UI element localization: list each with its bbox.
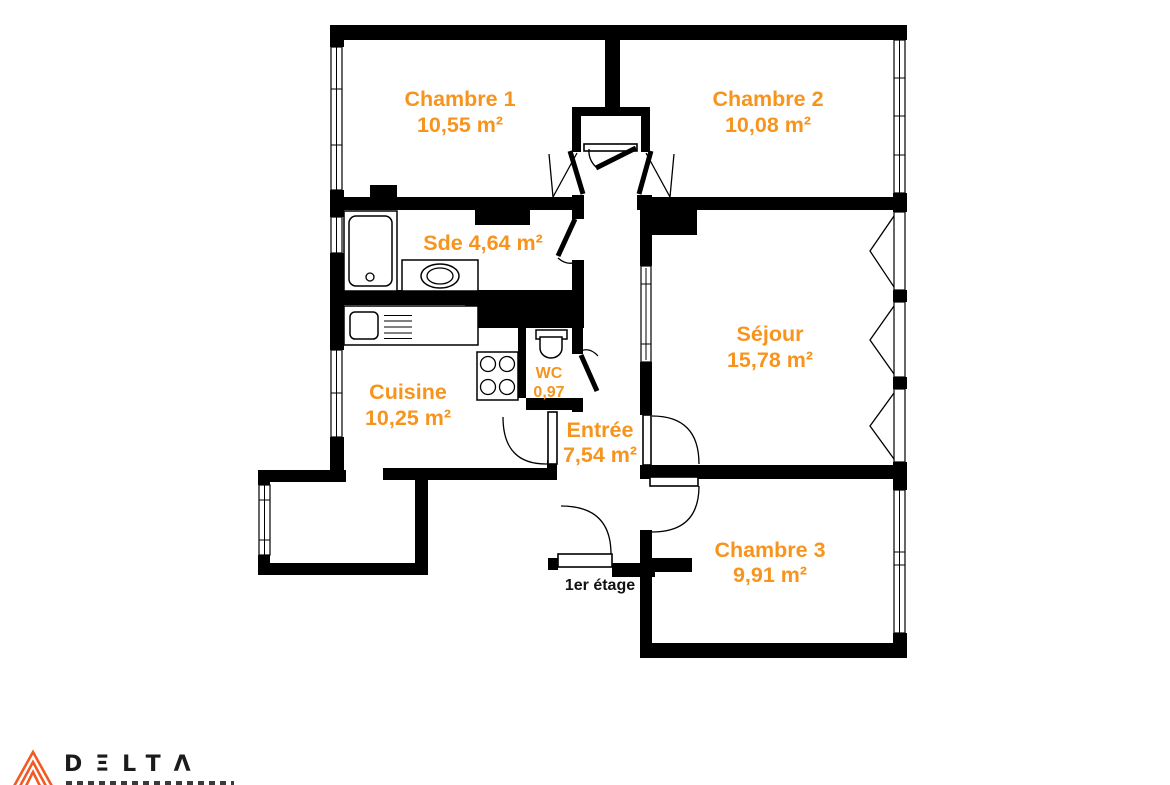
label-chambre1-area: 10,55 m² xyxy=(417,113,503,137)
floor-plan-drawing: Chambre 1 10,55 m² Chambre 2 10,08 m² Sd… xyxy=(0,0,1170,785)
label-cuisine-name: Cuisine xyxy=(369,380,447,404)
window-chambre2-right xyxy=(894,40,905,193)
label-chambre2-name: Chambre 2 xyxy=(712,87,823,111)
window-chambre1-left xyxy=(331,47,342,190)
window-cuisine-left xyxy=(331,350,342,437)
window-sde-left xyxy=(331,217,342,253)
label-cuisine-area: 10,25 m² xyxy=(365,406,451,430)
interior-window-entree-sejour xyxy=(641,266,651,362)
label-sde: Sde 4,64 m² xyxy=(423,231,543,255)
door-chambre3 xyxy=(650,477,699,532)
label-wc-area: 0,97 xyxy=(533,384,564,401)
logo-letter-a: Λ xyxy=(174,752,204,777)
logo-letter-l: L xyxy=(122,752,145,777)
label-chambre2-area: 10,08 m² xyxy=(725,113,811,137)
window-sejour-right-2 xyxy=(870,302,905,377)
door-sejour xyxy=(643,415,699,465)
stove xyxy=(477,352,518,400)
shower-tray xyxy=(344,211,397,291)
door-wc xyxy=(579,350,598,391)
kitchen-sink-unit xyxy=(344,306,478,345)
window-sejour-right-3 xyxy=(870,389,905,462)
delta-triangle-icon xyxy=(12,748,62,785)
logo-subline-cropped-text xyxy=(66,781,234,785)
label-sejour-name: Séjour xyxy=(737,322,805,346)
floor-level-label: 1er étage xyxy=(565,577,635,594)
logo-brand-text: DΞLTΛ xyxy=(64,754,204,776)
door-chambre2 xyxy=(639,151,674,197)
door-entrance-main xyxy=(558,506,612,567)
floor-plan-page: Chambre 1 10,55 m² Chambre 2 10,08 m² Sd… xyxy=(0,0,1170,785)
label-wc-name: WC xyxy=(536,365,563,382)
washbasin xyxy=(402,260,478,291)
door-chambre1 xyxy=(549,151,583,197)
agency-logo: DΞLTΛ xyxy=(12,748,62,785)
window-annex-left xyxy=(259,485,270,555)
logo-letter-d: D xyxy=(64,752,95,777)
label-entree-name: Entrée xyxy=(567,418,634,442)
label-entree-area: 7,54 m² xyxy=(563,443,637,467)
logo-letter-e: Ξ xyxy=(95,752,122,777)
label-chambre1-name: Chambre 1 xyxy=(404,87,515,111)
label-chambre3-name: Chambre 3 xyxy=(714,538,825,562)
label-sejour-area: 15,78 m² xyxy=(727,348,813,372)
label-chambre3-area: 9,91 m² xyxy=(733,563,807,587)
door-sde xyxy=(558,219,577,263)
window-chambre3-right xyxy=(894,490,905,633)
door-cuisine xyxy=(503,412,557,464)
logo-letter-t: T xyxy=(146,752,174,777)
window-sejour-right-1 xyxy=(870,212,905,290)
toilet xyxy=(536,330,567,358)
